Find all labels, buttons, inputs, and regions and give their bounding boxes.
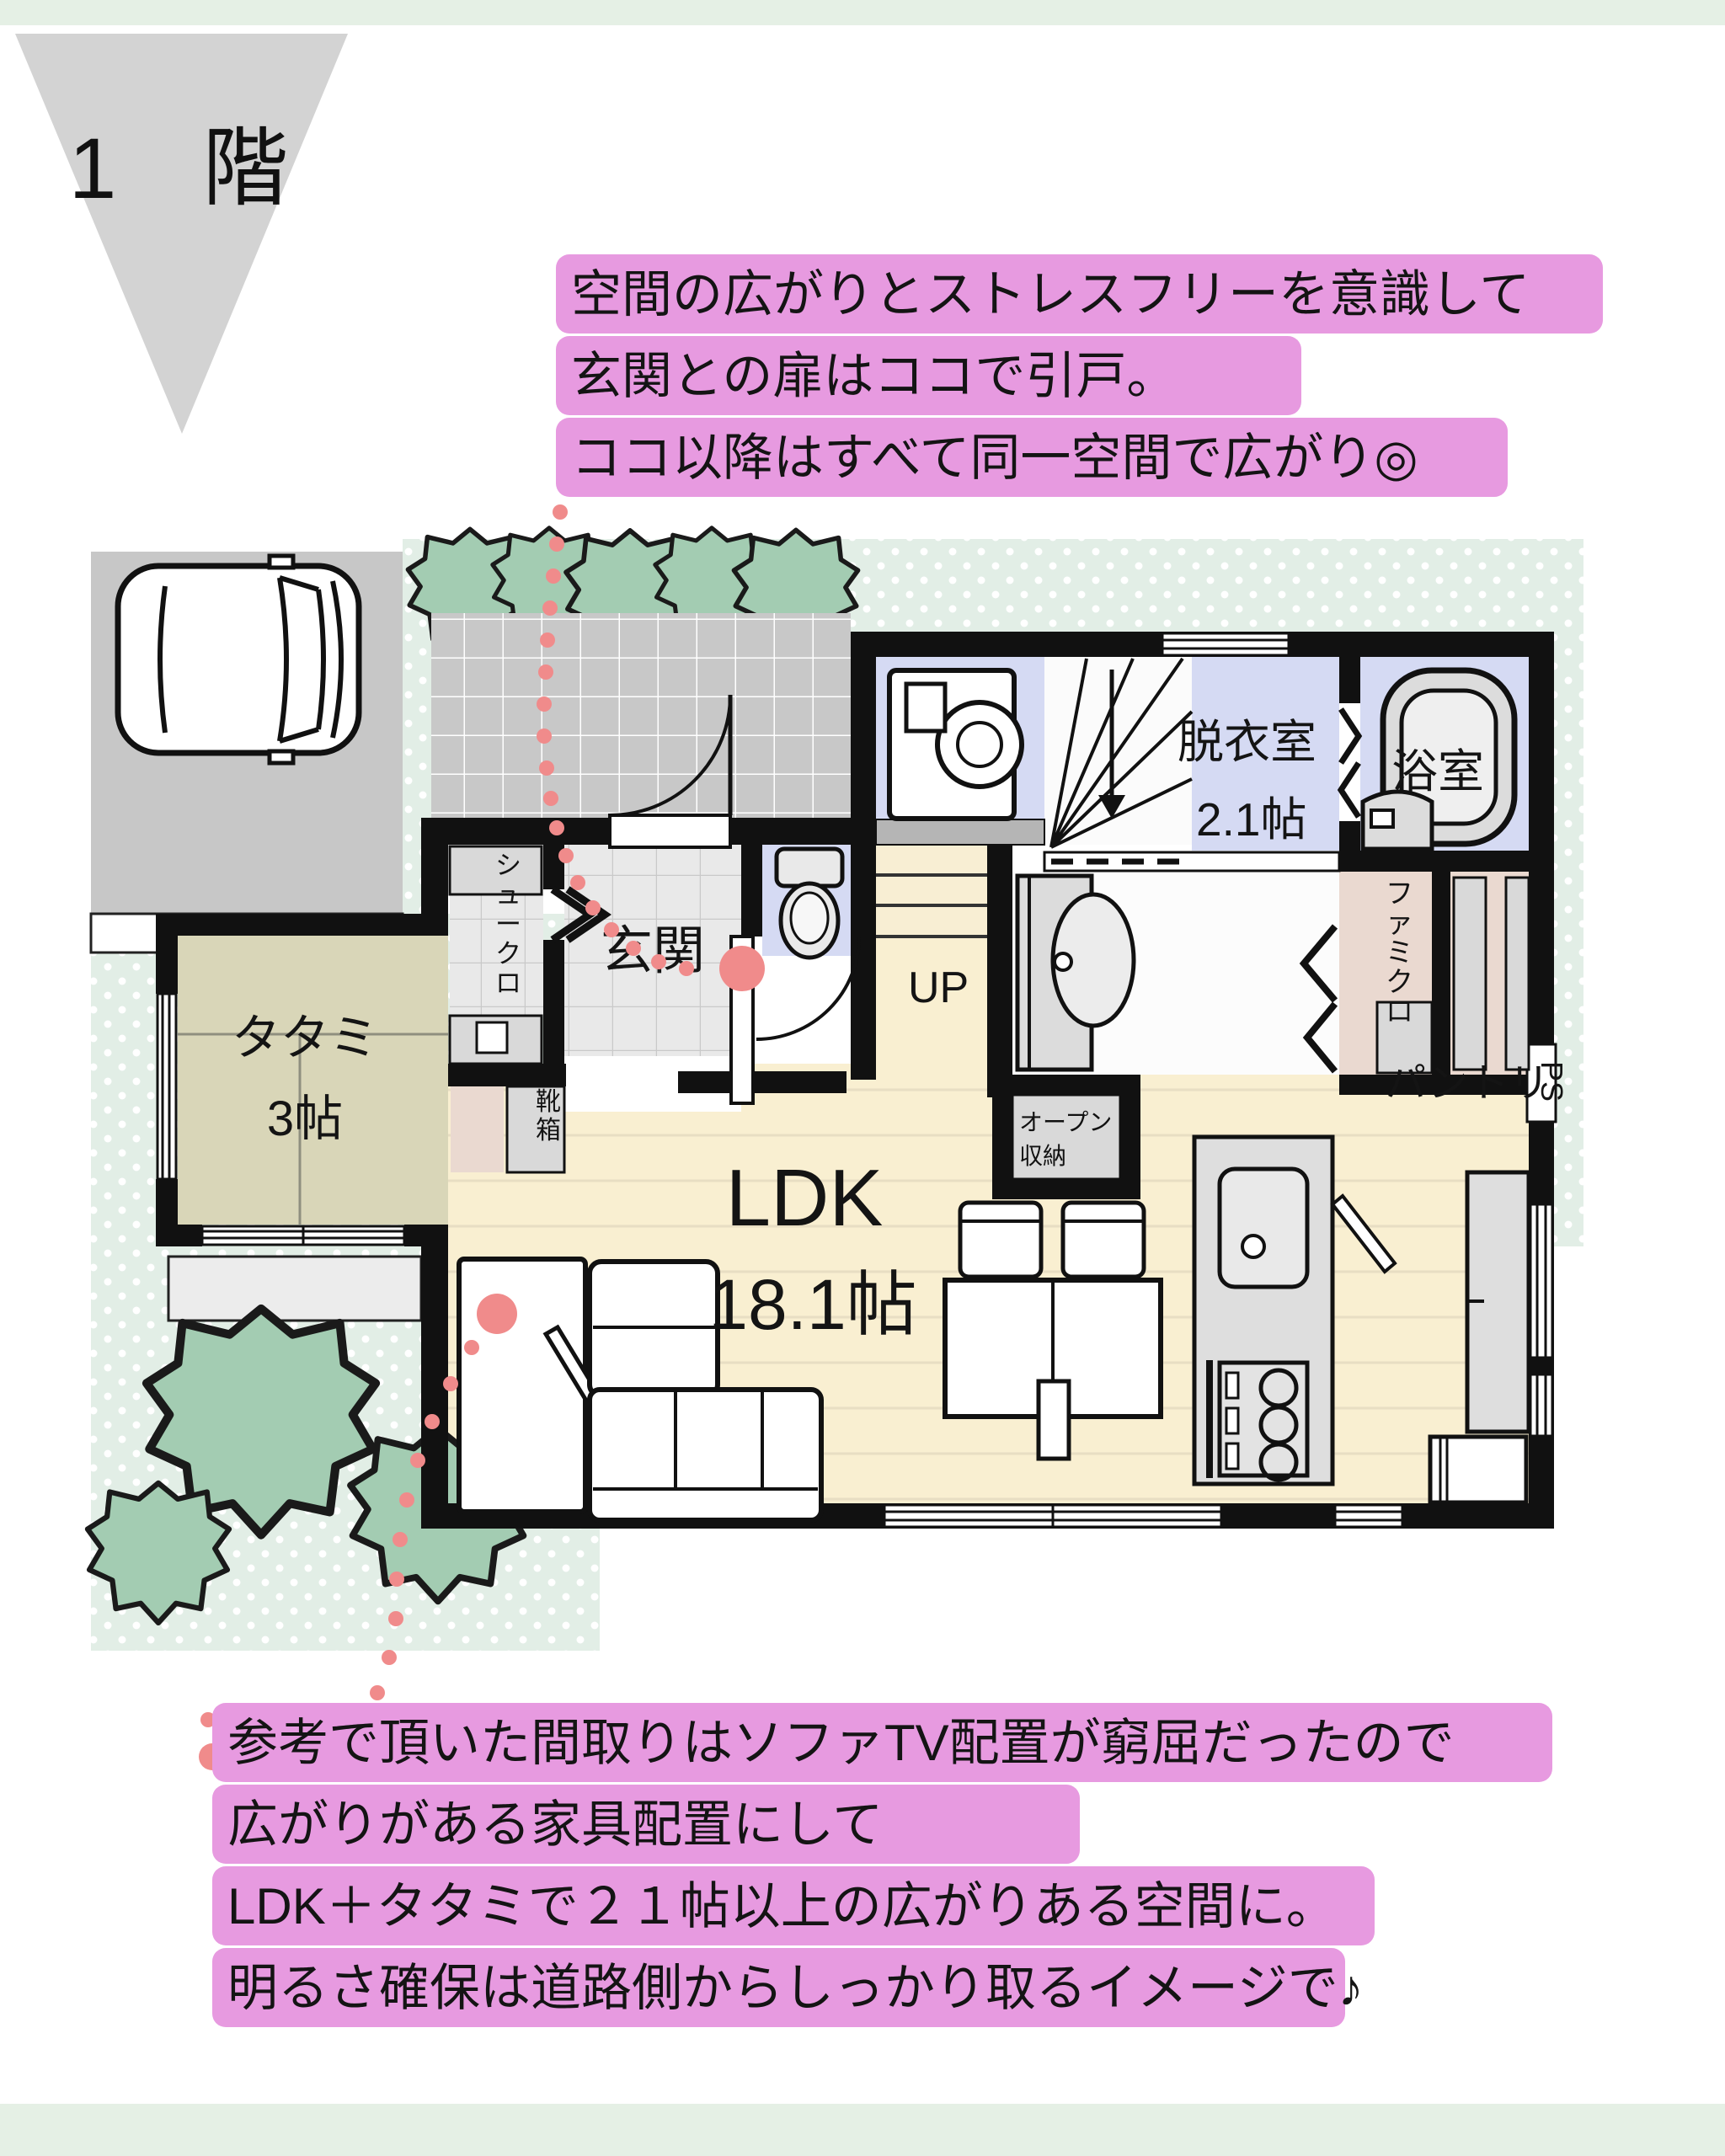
window-bottom-kitchen: [1335, 1505, 1402, 1527]
dressing-label: 脱衣室: [1178, 716, 1316, 768]
pantry-cabinet-left: [1454, 878, 1486, 1070]
window-right-upper: [1530, 1204, 1552, 1358]
fridge: [1430, 1437, 1526, 1502]
approach-right: [1554, 632, 1583, 1246]
stair-run-floor: [876, 845, 987, 937]
annotation-top-line3: ココ以降はすべて同一空間で広がり◎: [571, 430, 1418, 486]
ldk-size: 18.1帖: [708, 1265, 917, 1344]
floor-label: 1 階: [69, 120, 289, 216]
entrance-porch: [431, 613, 851, 818]
dining-bench: [1039, 1381, 1069, 1459]
sliding-door-marker-dot: [719, 946, 765, 991]
floorplan-svg: 1 階 空間の広がりとストレスフリーを意識して 玄関との扉はココで引戸。 ココ以…: [0, 0, 1725, 2156]
annotation-top-line1: 空間の広がりとストレスフリーを意識して: [571, 266, 1530, 323]
kitchen-back-counter: [1467, 1172, 1529, 1432]
tatami-room: [178, 936, 448, 1225]
dining-chair: [960, 1203, 1041, 1277]
family-closet-label: ファミクロ: [1386, 878, 1413, 1027]
open-storage: オープン 収納: [1012, 1095, 1120, 1179]
kitchen-sink: [1220, 1169, 1307, 1287]
bath-counter: [1363, 792, 1432, 849]
window-tatami-bottom: [202, 1226, 404, 1245]
stairs-up-label: UP: [908, 963, 969, 1012]
open-storage-label-1: オープン: [1019, 1109, 1112, 1135]
stair-handrail: [876, 819, 1044, 845]
bottom-mint-band: [0, 2104, 1725, 2156]
tv-marker-dot: [477, 1294, 517, 1334]
car: [118, 556, 359, 763]
kitchen-faucet: [1242, 1235, 1264, 1257]
bath-folding-door: [1339, 703, 1360, 821]
window-top-dressing: [1162, 633, 1289, 655]
tatami-label: タタミ: [232, 1011, 378, 1065]
pantry-cabinet-right: [1506, 878, 1529, 1070]
annotation-bottom-line1: 参考で頂いた間取りはソファTV配置が窮屈だったので: [227, 1715, 1455, 1771]
annotation-top-line2: 玄関との扉はココで引戸。: [571, 348, 1177, 404]
window-tatami-left: [158, 994, 176, 1179]
deck-terrace: [168, 1257, 421, 1321]
pantry-label: パントリ: [1386, 1061, 1549, 1106]
bath-label: 浴室: [1391, 745, 1484, 798]
window-bottom-dining: [884, 1505, 1221, 1527]
dressing-size: 2.1帖: [1196, 793, 1306, 846]
annotation-bottom-line2: 広がりがある家具配置にして: [227, 1796, 883, 1853]
open-storage-label-2: 収納: [1019, 1143, 1066, 1169]
window-right-lower: [1530, 1374, 1552, 1436]
dressing-partition: [1044, 852, 1339, 871]
dining-chair: [1063, 1203, 1144, 1277]
shoe-closet-cabinet-bottom: [450, 1016, 542, 1064]
tatami-closet: [451, 1086, 504, 1172]
tatami-size: 3帖: [267, 1091, 343, 1146]
annotation-bottom-line3: LDK＋タタミで２１帖以上の広がりある空間に。: [227, 1878, 1337, 1935]
kitchen-stove: [1206, 1360, 1307, 1480]
ldk-label: LDK: [726, 1153, 884, 1243]
top-mint-band: [0, 0, 1725, 25]
floorplan-page: 1 階 空間の広がりとストレスフリーを意識して 玄関との扉はココで引戸。 ココ以…: [0, 0, 1725, 2156]
shoe-box-label: 靴箱: [536, 1088, 561, 1145]
shoe-closet-label: シュークロ: [495, 851, 521, 998]
washing-machine: [889, 670, 1022, 819]
toilet-fixture: [777, 849, 842, 958]
pipe-space-label: PS: [1535, 1061, 1569, 1102]
annotation-bottom-line4: 明るさ確保は道路側からしっかり取るイメージで♪: [227, 1960, 1364, 2016]
